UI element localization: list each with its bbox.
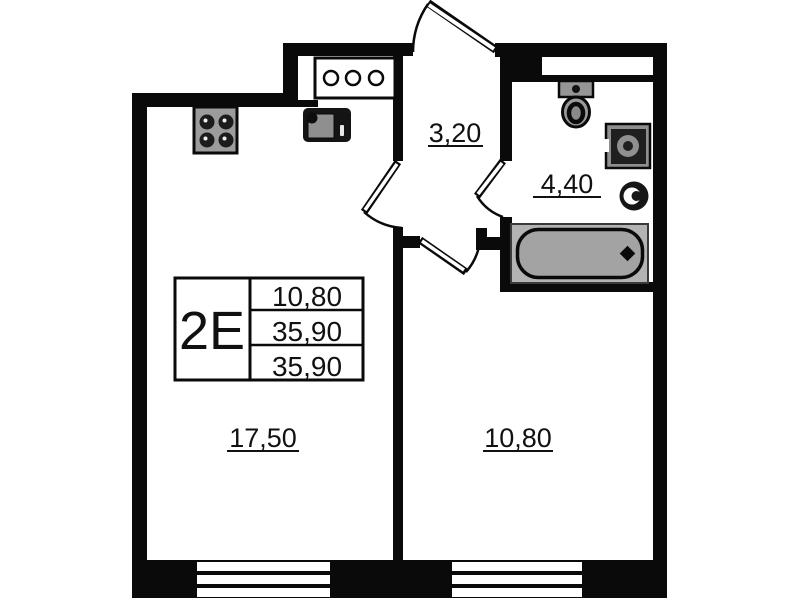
hall-area-label: 3,20: [429, 118, 482, 148]
burner: [219, 115, 234, 130]
living-room-door: [364, 162, 402, 228]
burner: [200, 115, 215, 130]
toilet-tank-button: [572, 85, 580, 93]
utility-risers-icon: [315, 58, 395, 98]
sink-faucet: [307, 113, 318, 124]
wall-kitchen-top: [132, 93, 293, 107]
window-pane-line: [197, 588, 330, 597]
door-leaf-fill: [478, 163, 502, 194]
door-swing-arc: [413, 4, 428, 52]
bathtub-icon: [511, 224, 648, 283]
toilet-icon: [559, 81, 593, 127]
burner: [219, 133, 234, 148]
bathroom-door: [477, 161, 503, 217]
door-leaf-fill: [365, 164, 397, 210]
wall-right: [653, 43, 667, 598]
living-kitchen-area-label: 17,50: [229, 423, 297, 453]
wall-niche-sill: [293, 100, 318, 107]
toilet-bowl-inner: [569, 104, 583, 122]
washing-machine-icon: [604, 124, 650, 168]
door-swing-arc: [477, 196, 503, 217]
kitchen-sink-icon: [303, 108, 351, 142]
wall-bathroom-corner-block: [500, 43, 542, 82]
area-table-value-overall: 35,90: [272, 351, 342, 382]
door-swing-arc: [364, 212, 402, 228]
area-table: 2E 10,80 35,90 35,90: [175, 278, 363, 382]
window-pane-line: [452, 562, 582, 571]
burner-mark: [204, 137, 208, 141]
burner: [200, 133, 215, 148]
basin-drain: [632, 191, 642, 201]
wall-living-bedroom: [393, 227, 403, 560]
wall-top-over-niche: [283, 43, 413, 56]
wash-basin-icon: [620, 182, 649, 211]
burner-mark: [223, 119, 227, 123]
window-pane-line: [452, 588, 582, 597]
wall-bedroom-door-left-jamb: [403, 236, 420, 248]
unit-type-label: 2E: [179, 301, 245, 361]
stove-4-burner-icon: [194, 107, 237, 153]
washer-slot: [604, 139, 609, 152]
window-living: [197, 562, 330, 597]
bathroom-area-label: 4,40: [541, 169, 594, 199]
door-leaf-fill: [429, 5, 494, 49]
bedroom-door: [420, 240, 480, 272]
riser-pipe: [346, 71, 360, 85]
bedroom-area-label: 10,80: [484, 423, 552, 453]
wall-bathroom-left-upper: [500, 82, 512, 161]
stove-body: [194, 107, 237, 153]
window-pane-line: [197, 575, 330, 584]
entrance-door: [413, 3, 496, 52]
burner-mark: [223, 137, 227, 141]
area-table-value-total: 35,90: [272, 316, 342, 347]
window-pane-line: [197, 562, 330, 571]
area-table-value-living: 10,80: [272, 281, 342, 312]
burner-mark: [204, 119, 208, 123]
sink-handle-slot: [340, 125, 344, 136]
wall-left: [132, 93, 147, 598]
riser-pipe: [369, 71, 383, 85]
riser-pipe: [324, 71, 338, 85]
window-pane-line: [452, 575, 582, 584]
window-bedroom: [452, 562, 582, 597]
floor-plan-image: 2E 10,80 35,90 35,90 17,50 10,80 3,20 4,…: [0, 0, 799, 600]
door-leaf-fill: [422, 241, 464, 270]
washer-hub: [623, 141, 633, 151]
